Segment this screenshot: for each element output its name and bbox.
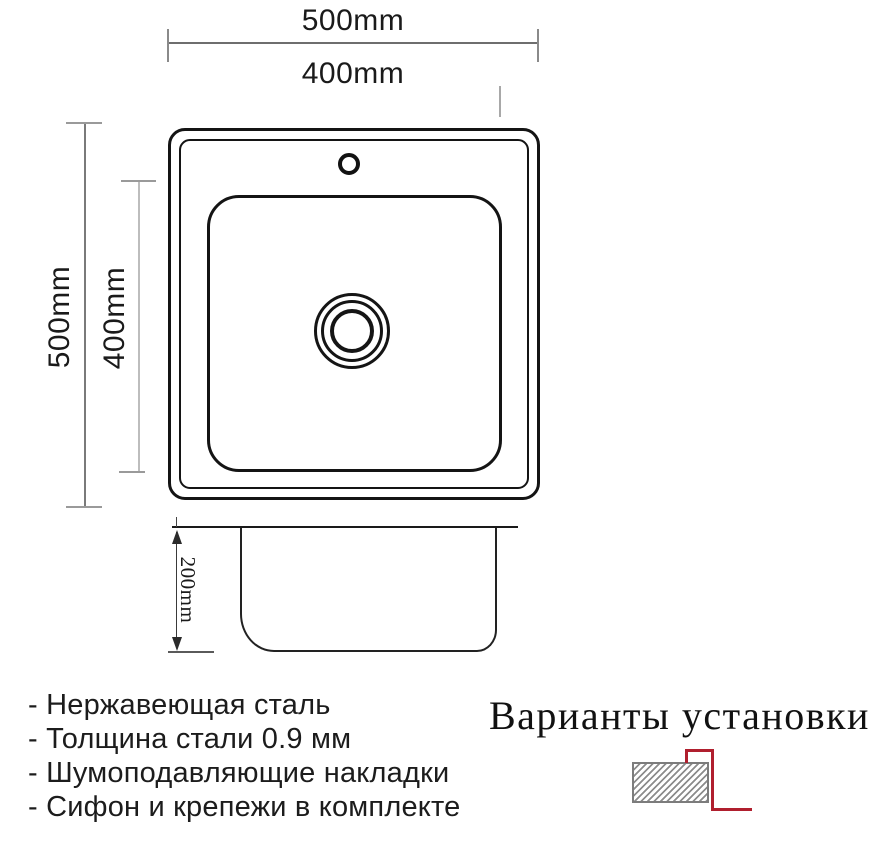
top-inner-width-right-tick	[499, 86, 501, 117]
top-width-left-tick	[167, 29, 169, 62]
faucet-hole-icon	[338, 153, 360, 175]
sink-lip-red-line	[711, 808, 752, 811]
depth-dimension-extension	[176, 517, 177, 527]
feature-item: - Нержавеющая сталь	[28, 688, 460, 722]
left-inner-height-dimension-line	[138, 181, 140, 472]
left-height-bottom-tick	[66, 506, 102, 508]
depth-bottom-tick	[168, 651, 214, 653]
sink-spec-diagram: 500mm 400mm 500mm 400mm 200mm - Нержавею…	[0, 0, 881, 849]
drain-inner-ring-icon	[330, 309, 374, 353]
feature-list: - Нержавеющая сталь - Толщина стали 0.9 …	[28, 688, 460, 824]
top-inner-width-label: 400mm	[268, 57, 438, 91]
feature-item: - Сифон и крепежи в комплекте	[28, 790, 460, 824]
top-width-right-tick	[537, 29, 539, 62]
left-height-dimension-line	[84, 123, 86, 506]
feature-item: - Толщина стали 0.9 мм	[28, 722, 460, 756]
countertop-hatch-icon	[632, 762, 709, 803]
left-inner-height-top-tick	[121, 180, 156, 182]
side-depth-label: 200mm	[177, 535, 199, 645]
left-inner-height-label: 400mm	[100, 233, 130, 403]
top-outer-width-label: 500mm	[268, 4, 438, 38]
sink-lip-red-line	[685, 749, 714, 752]
sink-lip-red-line	[711, 749, 714, 811]
left-height-top-tick	[66, 122, 102, 124]
installation-heading: Варианты установки	[489, 692, 870, 739]
top-width-dimension-line	[168, 42, 538, 44]
left-inner-height-bottom-tick	[119, 471, 145, 473]
left-outer-height-label: 500mm	[45, 232, 75, 402]
feature-item: - Шумоподавляющие накладки	[28, 756, 460, 790]
side-view-bowl-profile	[240, 528, 497, 652]
